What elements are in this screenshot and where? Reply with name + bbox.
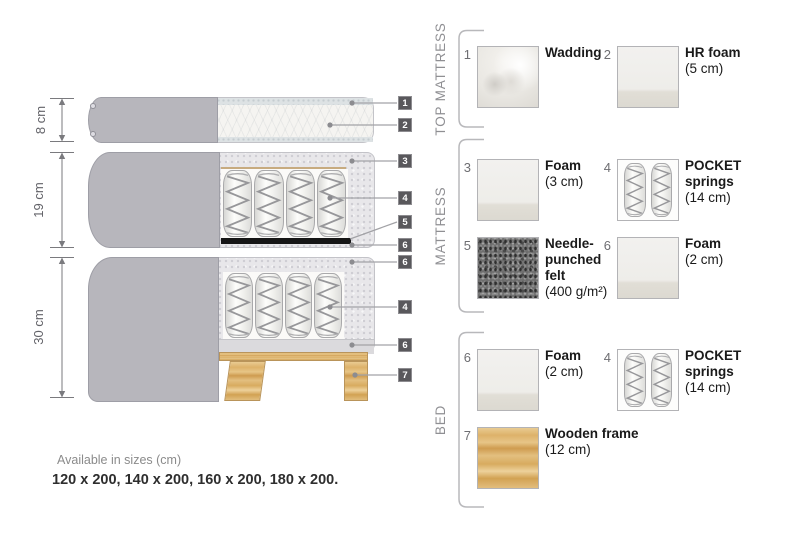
pocket-spring — [285, 273, 313, 338]
item-spec: (2 cm) — [685, 252, 723, 268]
pocket-spring — [651, 353, 673, 407]
pocket-spring — [254, 170, 283, 237]
bed-cutaway — [210, 257, 375, 352]
item-name: Foam — [545, 348, 583, 364]
item-number: 2 — [598, 47, 611, 62]
foam-swatch — [617, 237, 679, 299]
top-mattress-cutaway — [210, 97, 374, 143]
mattress-springs-window — [221, 169, 348, 238]
section-label-bed: BED — [433, 340, 449, 500]
tag-1: 1 — [398, 96, 412, 110]
legend-item-wadding: 1 Wadding — [458, 46, 602, 108]
item-name: POCKET springs — [685, 348, 765, 380]
tag-6b: 6 — [398, 255, 412, 269]
section-label-mattress: MATTRESS — [433, 146, 449, 306]
wooden-rail — [219, 352, 368, 361]
item-spec: (3 cm) — [545, 174, 583, 190]
item-name: Wooden frame — [545, 426, 639, 442]
legend-item-hr-foam: 2 HR foam (5 cm) — [598, 46, 741, 108]
item-name: Foam — [685, 236, 723, 252]
pocket-springs-swatch — [617, 159, 679, 221]
pocket-spring — [223, 170, 252, 237]
foam-swatch — [477, 159, 539, 221]
bed-springs-window — [223, 272, 344, 339]
pocket-spring — [317, 170, 346, 237]
wooden-leg-right — [344, 361, 368, 401]
legend-item-wooden-frame: 7 Wooden frame (12 cm) — [458, 427, 639, 489]
pocket-spring — [286, 170, 315, 237]
item-number: 7 — [458, 428, 471, 443]
item-number: 1 — [458, 47, 471, 62]
pocket-spring — [314, 273, 342, 338]
item-spec: (14 cm) — [685, 190, 765, 206]
item-spec: (14 cm) — [685, 380, 765, 396]
spring-top-liner — [221, 167, 346, 169]
pocket-spring — [255, 273, 283, 338]
felt-layer — [221, 238, 351, 244]
tag-4: 4 — [398, 191, 412, 205]
pocket-spring — [624, 163, 646, 217]
item-number: 4 — [598, 160, 611, 175]
item-number: 3 — [458, 160, 471, 175]
wooden-leg-left — [224, 361, 266, 401]
item-number: 5 — [458, 238, 471, 253]
tag-4b: 4 — [398, 300, 412, 314]
wadding-swatch — [477, 46, 539, 108]
legend-item-pocket-springs: 4 POCKET springs (14 cm) — [598, 159, 765, 221]
felt-swatch — [477, 237, 539, 299]
item-name: POCKET springs — [685, 158, 765, 190]
tag-5: 5 — [398, 215, 412, 229]
tag-6c: 6 — [398, 338, 412, 352]
legend-item-bed-foam: 6 Foam (2 cm) — [458, 349, 583, 411]
legend-item-foam-2cm: 6 Foam (2 cm) — [598, 237, 723, 299]
bed-cover — [88, 257, 219, 402]
mattress-button — [90, 131, 96, 137]
mattress-cutaway — [210, 152, 375, 248]
dimension-label-mattress: 19 cm — [31, 160, 45, 240]
foam-swatch — [477, 349, 539, 411]
section-label-top-mattress: TOP MATTRESS — [433, 0, 449, 159]
item-number: 6 — [598, 238, 611, 253]
wadding-layer-bottom — [211, 137, 373, 142]
available-sizes-list: 120 x 200, 140 x 200, 160 x 200, 180 x 2… — [52, 472, 338, 488]
item-spec: (5 cm) — [685, 61, 741, 77]
dimension-label-top-mattress: 8 cm — [33, 80, 47, 160]
pocket-springs-swatch — [617, 349, 679, 411]
wadding-layer — [211, 98, 373, 105]
legend-item-foam-3cm: 3 Foam (3 cm) — [458, 159, 583, 221]
pocket-spring — [225, 273, 253, 338]
item-spec: (12 cm) — [545, 442, 639, 458]
legend-item-bed-pocket-springs: 4 POCKET springs (14 cm) — [598, 349, 765, 411]
tag-2: 2 — [398, 118, 412, 132]
pocket-spring — [624, 353, 646, 407]
item-spec: (2 cm) — [545, 364, 583, 380]
pocket-spring — [651, 163, 673, 217]
item-number: 6 — [458, 350, 471, 365]
tag-3: 3 — [398, 154, 412, 168]
mattress-cover — [88, 152, 220, 248]
dimension-label-bed: 30 cm — [31, 287, 45, 367]
top-mattress-cover — [88, 97, 218, 143]
tag-6: 6 — [398, 238, 412, 252]
item-number: 4 — [598, 350, 611, 365]
item-name: Foam — [545, 158, 583, 174]
available-sizes-title: Available in sizes (cm) — [57, 453, 181, 467]
mattress-construction-infographic: 8 cm 19 cm 30 cm 1 2 3 — [0, 0, 800, 533]
foam-swatch — [617, 46, 679, 108]
item-name: HR foam — [685, 45, 741, 61]
item-name: Wadding — [545, 45, 602, 61]
mattress-button — [90, 103, 96, 109]
tag-7: 7 — [398, 368, 412, 382]
wood-swatch — [477, 427, 539, 489]
